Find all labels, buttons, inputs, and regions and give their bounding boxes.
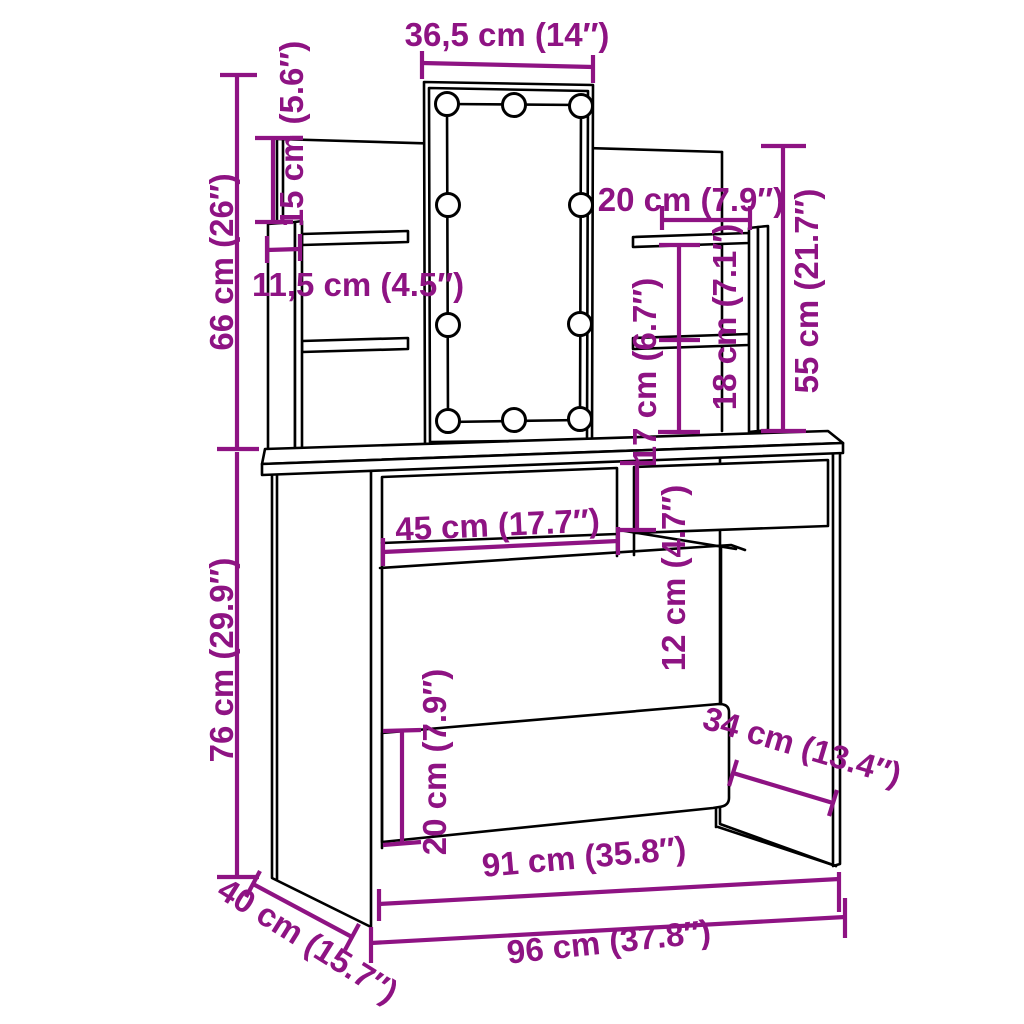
left-shelf-lower — [302, 338, 408, 352]
label-total-width: 96 cm (37.8″) — [505, 912, 713, 970]
dimension-diagram: 36,5 cm (14″) 15 cm (5.6″) 66 cm (26″) 1… — [0, 0, 1024, 1024]
label-shelf-depth: 11,5 cm (4.5″) — [252, 266, 464, 303]
label-shelf-gap-lower: 17 cm (6.7″) — [626, 278, 663, 464]
label-drawer-width: 45 cm (17.7″) — [394, 501, 600, 547]
label-drawer-height: 12 cm (4.7″) — [655, 485, 692, 671]
led-bulb — [436, 93, 459, 116]
dim-inner-width — [379, 872, 839, 921]
label-mirror-width: 36,5 cm (14″) — [405, 16, 610, 53]
dim-line — [379, 879, 839, 904]
led-bulb — [437, 410, 460, 433]
label-back-panel-height: 55 cm (21.7″) — [788, 189, 825, 394]
label-panel-offset: 15 cm (5.6″) — [273, 41, 310, 227]
dim-mirror-width — [422, 51, 593, 83]
led-bulb — [503, 94, 526, 117]
dim-line — [422, 63, 593, 67]
dim-shelf-gap-upper — [659, 245, 700, 340]
led-bulb — [437, 194, 460, 217]
label-shelf-gap-upper: 18 cm (7.1″) — [706, 224, 743, 410]
dim-line — [267, 249, 300, 250]
led-bulb — [570, 95, 593, 118]
label-modesty-panel-height: 20 cm (7.9″) — [416, 669, 453, 855]
dim-shelf-gap-lower — [658, 340, 700, 432]
label-upper-height: 66 cm (26″) — [203, 173, 240, 350]
left-upright-front-face — [268, 222, 295, 456]
diagram-canvas: 36,5 cm (14″) 15 cm (5.6″) 66 cm (26″) 1… — [0, 0, 1024, 1024]
left-shelf-upper — [302, 231, 408, 245]
left-leg-outer-face — [272, 463, 371, 927]
led-bulb — [569, 313, 592, 336]
label-table-height: 76 cm (29.9″) — [203, 558, 240, 763]
left-shelf-tower — [268, 221, 408, 456]
right-upright-front-face — [749, 227, 758, 432]
led-bulb — [503, 409, 526, 432]
label-inner-width: 91 cm (35.8″) — [480, 829, 687, 884]
led-mirror — [424, 82, 593, 447]
led-bulb — [570, 194, 593, 217]
led-bulb — [437, 314, 460, 337]
right-upright-side-face — [758, 226, 768, 431]
mirror-frame-outer — [424, 82, 593, 447]
label-right-shelf-width: 20 cm (7.9″) — [598, 181, 784, 218]
led-bulb — [569, 408, 592, 431]
